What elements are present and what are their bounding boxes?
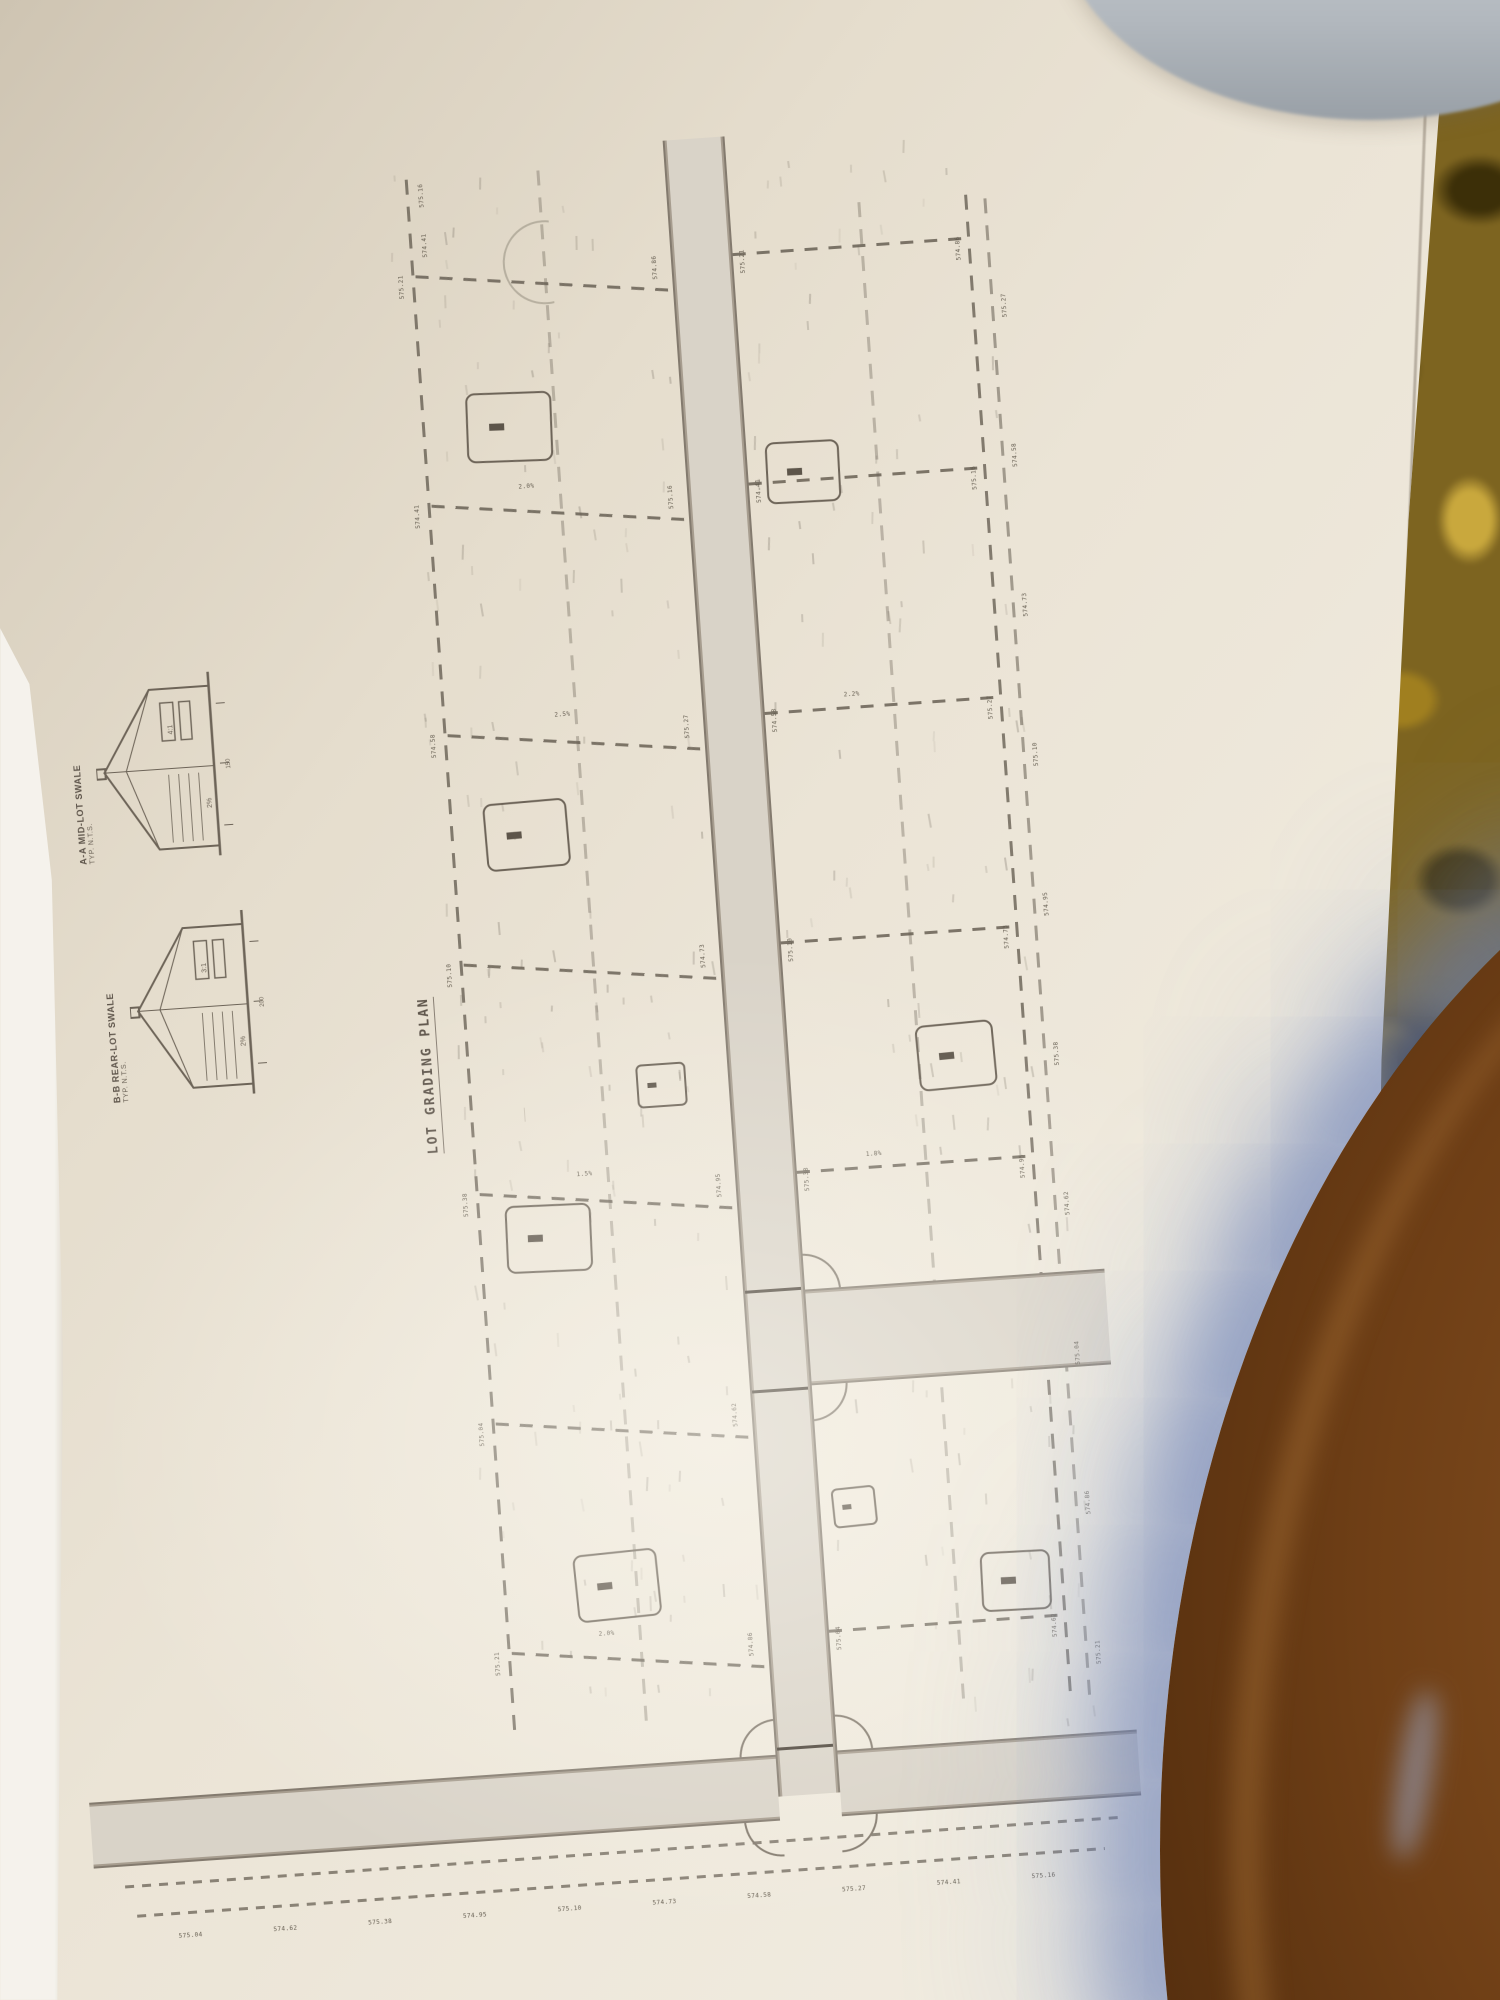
grading-mark — [701, 832, 703, 839]
grading-mark — [580, 1422, 582, 1434]
grading-mark — [611, 610, 613, 616]
grading-mark — [488, 966, 490, 977]
detail-b-note: TYP. N.T.S. — [109, 893, 131, 1103]
lot-line — [512, 1652, 768, 1668]
grading-mark — [460, 994, 462, 1005]
grading-mark — [474, 1285, 478, 1300]
elevation-label: 574.58 — [429, 734, 438, 759]
elevation-label: 574.73 — [1002, 924, 1011, 949]
grading-mark — [995, 410, 998, 418]
grading-mark — [887, 998, 889, 1007]
grading-mark — [462, 545, 464, 560]
grading-mark — [963, 1427, 965, 1434]
side-street — [805, 1269, 1111, 1386]
house-footprint — [572, 1547, 663, 1623]
grading-mark — [758, 343, 760, 353]
grading-mark — [553, 950, 557, 962]
grading-mark — [662, 439, 665, 451]
grading-mark — [1004, 858, 1007, 871]
grading-mark — [620, 579, 622, 593]
grading-mark — [671, 805, 674, 819]
grading-mark — [642, 1115, 645, 1128]
grading-mark — [985, 1493, 987, 1504]
svg-text:150: 150 — [226, 758, 233, 769]
grading-mark — [679, 1071, 682, 1078]
elevation-label: 574.41 — [754, 479, 763, 504]
grading-mark — [589, 1687, 591, 1694]
grading-mark — [722, 1583, 725, 1597]
grading-mark — [946, 168, 948, 175]
grading-mark — [987, 1117, 989, 1130]
grading-mark — [669, 1485, 671, 1492]
grading-mark — [1011, 1378, 1013, 1388]
elevation-label: 575.04 — [478, 1422, 487, 1447]
elevation-label: 575.04 — [835, 1626, 844, 1651]
slope-label: 1.5% — [576, 1170, 593, 1178]
grading-mark — [428, 739, 430, 745]
grading-mark — [464, 385, 467, 396]
grading-mark — [625, 528, 627, 537]
grading-mark — [634, 1368, 636, 1376]
grading-mark — [641, 1568, 643, 1580]
grading-mark — [1004, 604, 1007, 616]
grading-mark — [932, 856, 934, 867]
grading-mark — [952, 894, 954, 902]
elevation-label: 575.10 — [787, 937, 796, 962]
lot-line — [733, 237, 969, 256]
elevation-label: 575.10 — [445, 963, 454, 988]
south-boundary-tick-line — [983, 188, 1091, 1695]
grading-mark — [570, 1651, 572, 1657]
grading-mark — [686, 1086, 689, 1092]
elevation-label: 574.41 — [937, 1878, 962, 1887]
grading-mark — [928, 814, 932, 828]
grading-mark — [646, 1477, 648, 1491]
grading-mark — [1024, 957, 1028, 971]
elevation-label: 575.04 — [178, 1931, 203, 1940]
svg-text:2%: 2% — [240, 1036, 248, 1047]
curb-fillet — [833, 1712, 874, 1753]
elevation-label: 575.27 — [986, 695, 995, 720]
grading-mark — [1031, 1668, 1033, 1680]
grading-mark — [795, 263, 797, 270]
grading-mark — [480, 603, 484, 616]
grading-mark — [539, 1037, 543, 1048]
grading-mark — [925, 1390, 927, 1397]
grading-mark — [625, 543, 628, 552]
curb-fillet — [737, 1719, 778, 1760]
slope-label: 2.5% — [554, 711, 571, 719]
curb-fillet — [801, 1251, 842, 1292]
grading-mark — [909, 1458, 913, 1472]
grading-mark — [925, 1555, 928, 1566]
grading-mark — [909, 1035, 911, 1042]
grading-mark — [666, 601, 669, 609]
grading-mark — [1015, 720, 1018, 732]
grading-mark — [960, 1052, 963, 1062]
house-footprint — [504, 1202, 593, 1274]
grading-mark — [552, 450, 555, 465]
elevation-label: 574.58 — [770, 708, 779, 733]
curb-fillet — [744, 1818, 785, 1859]
grading-mark — [1028, 1668, 1030, 1683]
grading-mark — [393, 176, 395, 182]
grading-mark — [992, 356, 994, 370]
grading-mark — [1078, 1583, 1080, 1597]
detail-a-note: TYP. N.T.S. — [75, 654, 97, 864]
grading-mark — [1066, 1718, 1069, 1726]
grading-mark — [678, 1070, 680, 1081]
grading-mark — [591, 238, 593, 250]
grading-mark — [682, 1554, 685, 1561]
grading-mark — [541, 1641, 543, 1650]
slope-label: 2.2% — [843, 690, 860, 698]
detail-b-title: B-B REAR-LOT SWALE — [98, 893, 123, 1103]
slope-label: 1.8% — [866, 1150, 883, 1158]
grading-mark — [996, 1084, 999, 1095]
grading-mark — [605, 1688, 607, 1697]
grading-mark — [424, 717, 426, 727]
grading-mark — [880, 225, 883, 235]
grading-mark — [812, 553, 814, 564]
grading-mark — [709, 1688, 711, 1696]
grading-mark — [1021, 718, 1025, 733]
grading-mark — [531, 370, 534, 377]
grading-mark — [497, 922, 500, 935]
grading-mark — [436, 599, 439, 611]
grading-mark — [809, 294, 811, 304]
grading-mark — [711, 962, 715, 976]
grading-mark — [798, 521, 801, 529]
grading-mark — [1028, 1551, 1031, 1559]
grading-mark — [669, 1615, 671, 1622]
grading-mark — [515, 761, 519, 775]
elevation-label: 575.38 — [803, 1167, 812, 1192]
grading-mark — [697, 1233, 699, 1241]
grading-mark — [677, 1337, 679, 1345]
grading-mark — [726, 1387, 728, 1396]
grading-mark — [520, 960, 522, 968]
lot-line — [448, 734, 704, 750]
grading-mark — [857, 246, 860, 256]
grading-mark — [834, 871, 836, 881]
mid-lot-swale-line-north — [536, 164, 648, 1720]
grading-mark — [496, 207, 498, 214]
grading-mark — [477, 363, 479, 370]
grading-mark — [972, 544, 975, 556]
grading-mark — [654, 1218, 656, 1225]
grading-mark — [1049, 1395, 1051, 1404]
plan-title: LOT GRADING PLAN — [416, 997, 445, 1155]
grading-mark — [572, 1405, 575, 1412]
main-street — [663, 136, 841, 1796]
elevation-label: 575.10 — [1031, 742, 1040, 767]
cross-street-lower — [837, 1730, 1141, 1817]
grading-mark — [523, 1107, 526, 1121]
svg-text:3:1: 3:1 — [201, 963, 209, 973]
grading-mark — [581, 1499, 585, 1512]
curb-bar — [777, 1744, 833, 1751]
grading-mark — [923, 199, 925, 207]
grading-mark — [622, 998, 624, 1005]
grading-mark — [513, 831, 516, 839]
grading-mark — [918, 414, 921, 421]
grading-mark — [720, 1497, 723, 1506]
grading-mark — [757, 478, 759, 489]
elevation-label: 575.27 — [842, 1885, 867, 1894]
grading-mark — [558, 332, 560, 338]
grading-mark — [607, 985, 609, 993]
svg-text:2%: 2% — [206, 798, 214, 809]
grading-mark — [470, 727, 472, 738]
elevation-label: 574.95 — [1018, 1154, 1027, 1179]
elevation-label: 574.62 — [1050, 1613, 1059, 1638]
grading-mark — [932, 732, 934, 742]
grading-mark — [610, 1420, 612, 1430]
grading-mark — [1003, 1077, 1006, 1089]
grading-mark — [912, 1381, 914, 1393]
grading-mark — [566, 1160, 568, 1172]
grading-mark — [837, 1541, 839, 1552]
grading-mark — [583, 737, 585, 744]
lot-line — [464, 964, 720, 980]
grading-mark — [1066, 1217, 1068, 1231]
grading-mark — [1029, 1406, 1032, 1412]
elevation-label: 575.10 — [558, 1905, 583, 1914]
elevation-label: 574.62 — [273, 1925, 298, 1934]
grading-mark — [444, 233, 447, 246]
grading-mark — [471, 566, 473, 575]
grading-mark — [534, 1432, 537, 1446]
grading-mark — [1018, 1146, 1021, 1159]
grading-mark — [494, 1344, 497, 1357]
grading-mark — [509, 1180, 513, 1191]
elevation-label: 574.95 — [463, 1911, 488, 1920]
house-footprint — [830, 1484, 878, 1528]
elevation-label: 574.58 — [1011, 443, 1020, 468]
grading-mark — [822, 633, 824, 647]
elevation-label: 574.73 — [652, 1898, 677, 1907]
svg-text:200: 200 — [259, 996, 266, 1007]
svg-text:4:1: 4:1 — [167, 724, 175, 734]
cross-street-upper — [89, 1755, 780, 1869]
grading-mark — [683, 1596, 685, 1603]
grading-mark — [481, 798, 483, 807]
grading-mark — [639, 1442, 643, 1457]
grading-mark — [464, 1107, 466, 1120]
mid-lot-swale-line-south — [857, 202, 965, 1699]
lot-line — [797, 1154, 1033, 1173]
grading-mark — [634, 1607, 637, 1617]
grading-mark — [519, 579, 521, 591]
grading-mark — [871, 512, 873, 524]
elevation-label: 574.86 — [954, 236, 963, 261]
detail-section-b: B-B REAR-LOT SWALE TYP. N.T.S. — [98, 882, 281, 1103]
curb-bar — [752, 1387, 808, 1394]
grading-mark — [832, 502, 835, 510]
lot-line — [765, 696, 1001, 715]
rear-lot-line-north — [404, 174, 516, 1730]
elevation-label: 574.86 — [747, 1632, 756, 1657]
grading-mark — [578, 507, 582, 519]
elevation-label: 574.95 — [1042, 892, 1051, 917]
grading-mark — [663, 481, 665, 492]
grading-mark — [1083, 1500, 1086, 1511]
grading-mark — [1093, 1706, 1096, 1717]
grading-mark — [612, 1181, 614, 1190]
grading-mark — [479, 1468, 481, 1480]
house-footprint — [465, 391, 553, 464]
lot-line — [415, 275, 671, 291]
elevation-label: 574.41 — [413, 504, 422, 529]
grading-mark — [755, 1585, 758, 1600]
grading-mark — [1048, 1436, 1050, 1447]
lot-line — [781, 925, 1017, 944]
grading-mark — [432, 662, 434, 676]
grading-mark — [898, 619, 900, 633]
grading-mark — [512, 301, 514, 310]
grading-mark — [596, 1003, 599, 1013]
grading-mark — [575, 236, 577, 250]
grading-mark — [484, 1016, 486, 1023]
grading-mark — [939, 1147, 942, 1156]
cul-de-sac-arc — [500, 217, 590, 307]
slope-label: 2.0% — [518, 483, 535, 491]
grading-mark — [888, 611, 892, 624]
house-footprint — [914, 1019, 998, 1092]
grading-mark — [941, 1546, 944, 1555]
street-b-east-ticks — [125, 1816, 1123, 1889]
grading-mark — [501, 803, 504, 811]
grading-mark — [561, 206, 564, 213]
grading-mark — [927, 864, 930, 871]
grading-mark — [855, 1399, 858, 1413]
grading-mark — [557, 1333, 559, 1347]
elevation-label: 574.62 — [1063, 1191, 1072, 1216]
grading-mark — [524, 465, 526, 472]
grading-mark — [758, 354, 760, 364]
grading-mark — [499, 1002, 501, 1008]
elevation-label: 575.16 — [1031, 1872, 1056, 1881]
elevation-label: 574.58 — [747, 1891, 772, 1900]
grading-mark — [1027, 1223, 1030, 1233]
grading-mark — [934, 741, 936, 752]
grading-mark — [787, 930, 789, 938]
grading-mark — [754, 231, 756, 238]
elevation-label: 575.21 — [738, 249, 747, 274]
grading-mark — [657, 1685, 660, 1693]
grading-mark — [458, 1046, 460, 1060]
grading-mark — [775, 702, 777, 715]
grading-mark — [551, 1005, 553, 1012]
grading-mark — [589, 912, 591, 919]
grading-mark — [918, 1004, 921, 1019]
house-footprint — [764, 439, 841, 505]
grading-mark — [883, 171, 887, 183]
grading-mark — [502, 1532, 504, 1539]
grading-mark — [668, 1033, 671, 1040]
elevation-label: 575.16 — [417, 183, 426, 208]
grading-mark — [504, 1303, 506, 1310]
grading-mark — [491, 722, 494, 731]
elevation-label: 575.21 — [1094, 1640, 1103, 1665]
elevation-label: 575.27 — [1000, 293, 1009, 318]
grading-mark — [892, 1044, 895, 1053]
grading-mark — [985, 865, 988, 872]
elevation-label: 574.73 — [699, 944, 708, 969]
grading-mark — [747, 372, 750, 381]
detail-a-title: A-A MID-LOT SWALE — [64, 655, 89, 865]
grading-mark — [423, 713, 426, 721]
grading-mark — [687, 1356, 690, 1363]
grading-mark — [640, 1105, 642, 1117]
grading-mark — [576, 782, 579, 795]
elevation-label: 575.38 — [462, 1193, 471, 1218]
grading-mark — [838, 750, 841, 759]
elevation-label: 574.86 — [1084, 1490, 1093, 1515]
grading-mark — [725, 1275, 728, 1289]
grading-mark — [653, 1591, 656, 1602]
grading-mark — [801, 614, 803, 622]
grading-mark — [850, 165, 852, 173]
grading-mark — [669, 377, 671, 384]
grading-mark — [486, 969, 489, 976]
elevation-label: 574.41 — [421, 233, 430, 258]
lot-line — [480, 1193, 736, 1209]
grading-mark — [631, 1561, 633, 1572]
elevation-label: 574.95 — [715, 1173, 724, 1198]
grading-mark — [391, 253, 393, 262]
lot-line — [829, 1613, 1065, 1632]
grading-mark — [593, 529, 597, 540]
grading-mark — [875, 455, 877, 463]
grading-mark — [619, 1394, 621, 1401]
elevation-label: 575.16 — [970, 466, 979, 491]
grading-mark — [474, 1170, 476, 1177]
grading-mark — [1030, 1065, 1034, 1076]
elevation-label: 575.27 — [683, 714, 692, 739]
grading-mark — [650, 996, 653, 1003]
elevation-label: 575.21 — [397, 275, 406, 300]
elevation-label: 574.86 — [651, 255, 660, 280]
grading-mark — [839, 228, 841, 242]
grading-mark — [548, 343, 550, 353]
grading-mark — [840, 485, 843, 494]
grading-mark — [807, 321, 809, 330]
grading-mark — [901, 601, 903, 607]
grading-mark — [686, 734, 690, 748]
grading-mark — [767, 537, 769, 550]
lot-grading-plan-drawing: A-A MID-LOT SWALE TYP. N.T.S. — [0, 26, 1150, 1995]
elevation-label: 575.16 — [667, 485, 676, 510]
rear-lot-line-south — [964, 195, 1072, 1692]
slope-label: 2.0% — [598, 1630, 615, 1638]
grading-mark — [479, 666, 481, 679]
grading-mark — [612, 1185, 616, 1197]
elevation-label: 575.38 — [1052, 1041, 1061, 1066]
grading-mark — [452, 227, 454, 237]
grading-mark — [810, 918, 813, 928]
grading-mark — [657, 1419, 659, 1429]
grading-mark — [649, 1596, 651, 1611]
grading-mark — [466, 795, 469, 807]
curb-bar — [745, 1287, 801, 1294]
grading-mark — [427, 572, 430, 581]
grading-mark — [922, 540, 924, 553]
grading-mark — [957, 1452, 960, 1465]
lot-line — [749, 466, 985, 485]
grading-mark — [446, 903, 448, 916]
